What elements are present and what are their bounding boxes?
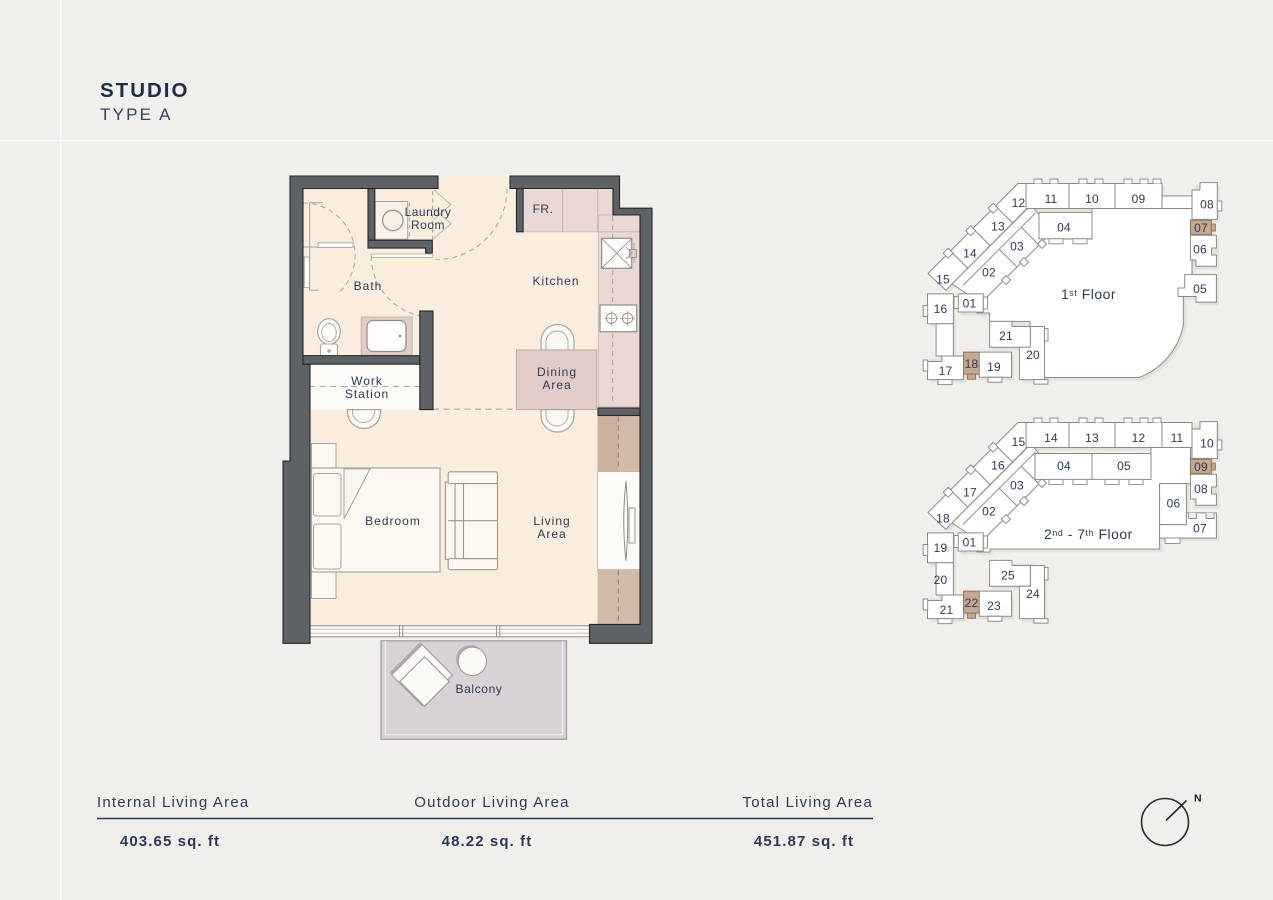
svg-text:11: 11: [1045, 192, 1058, 206]
svg-text:451.87 sq. ft: 451.87 sq. ft: [754, 833, 854, 850]
svg-text:14: 14: [1044, 431, 1058, 445]
svg-text:19: 19: [934, 541, 948, 555]
svg-text:22: 22: [965, 596, 979, 610]
svg-text:03: 03: [1010, 478, 1024, 492]
svg-text:1st Floor: 1st Floor: [1061, 286, 1116, 302]
svg-text:15: 15: [1012, 435, 1026, 449]
svg-text:17: 17: [939, 364, 953, 378]
svg-text:09: 09: [1132, 192, 1146, 206]
svg-text:Balcony: Balcony: [456, 682, 503, 696]
svg-text:Internal Living Area: Internal Living Area: [97, 794, 249, 811]
svg-text:01: 01: [963, 296, 977, 310]
svg-text:Living: Living: [533, 514, 570, 528]
svg-text:15: 15: [936, 272, 950, 286]
svg-text:04: 04: [1057, 220, 1071, 234]
svg-text:01: 01: [963, 535, 977, 549]
svg-text:09: 09: [1194, 460, 1208, 474]
svg-text:08: 08: [1200, 197, 1214, 211]
svg-text:06: 06: [1167, 496, 1181, 510]
svg-text:10: 10: [1200, 436, 1214, 450]
svg-text:04: 04: [1057, 459, 1071, 473]
svg-text:11: 11: [1171, 431, 1184, 445]
svg-text:07: 07: [1194, 221, 1208, 235]
svg-text:12: 12: [1132, 431, 1146, 445]
svg-text:STUDIO: STUDIO: [100, 79, 189, 102]
svg-text:05: 05: [1193, 282, 1207, 296]
svg-text:07: 07: [1193, 521, 1207, 535]
svg-text:Bedroom: Bedroom: [365, 514, 421, 528]
svg-text:Laundry: Laundry: [405, 205, 452, 219]
svg-text:17: 17: [963, 485, 977, 499]
svg-text:20: 20: [1026, 348, 1040, 362]
svg-text:24: 24: [1026, 587, 1040, 601]
svg-text:10: 10: [1085, 192, 1099, 206]
svg-text:N: N: [1194, 793, 1202, 805]
svg-text:20: 20: [934, 573, 948, 587]
svg-text:12: 12: [1012, 196, 1026, 210]
svg-text:14: 14: [963, 246, 977, 260]
svg-text:08: 08: [1194, 482, 1208, 496]
svg-text:18: 18: [965, 357, 979, 371]
svg-text:Outdoor Living Area: Outdoor Living Area: [414, 794, 569, 811]
svg-text:06: 06: [1193, 242, 1207, 256]
svg-text:403.65 sq. ft: 403.65 sq. ft: [120, 833, 220, 850]
svg-text:Area: Area: [537, 527, 566, 541]
svg-text:02: 02: [982, 504, 996, 518]
svg-text:23: 23: [987, 599, 1001, 613]
svg-text:FR.: FR.: [533, 202, 554, 216]
svg-text:Room: Room: [411, 218, 445, 232]
svg-text:48.22 sq. ft: 48.22 sq. ft: [442, 833, 533, 850]
svg-text:Work: Work: [351, 374, 383, 388]
svg-text:TYPE A: TYPE A: [100, 105, 173, 124]
svg-text:16: 16: [991, 458, 1005, 472]
svg-text:21: 21: [999, 329, 1013, 343]
svg-text:Station: Station: [345, 387, 389, 401]
svg-text:19: 19: [987, 360, 1001, 374]
svg-text:Bath: Bath: [354, 279, 383, 293]
svg-text:03: 03: [1010, 239, 1024, 253]
svg-text:21: 21: [940, 603, 954, 617]
svg-text:Area: Area: [542, 378, 571, 392]
svg-text:Total Living Area: Total Living Area: [743, 794, 873, 811]
svg-text:18: 18: [936, 511, 950, 525]
svg-text:Dining: Dining: [537, 365, 577, 379]
svg-text:02: 02: [982, 265, 996, 279]
svg-text:13: 13: [991, 219, 1005, 233]
svg-text:Kitchen: Kitchen: [532, 274, 579, 288]
svg-text:25: 25: [1001, 568, 1015, 582]
svg-text:13: 13: [1085, 431, 1099, 445]
svg-text:05: 05: [1117, 459, 1131, 473]
svg-text:16: 16: [934, 302, 948, 316]
